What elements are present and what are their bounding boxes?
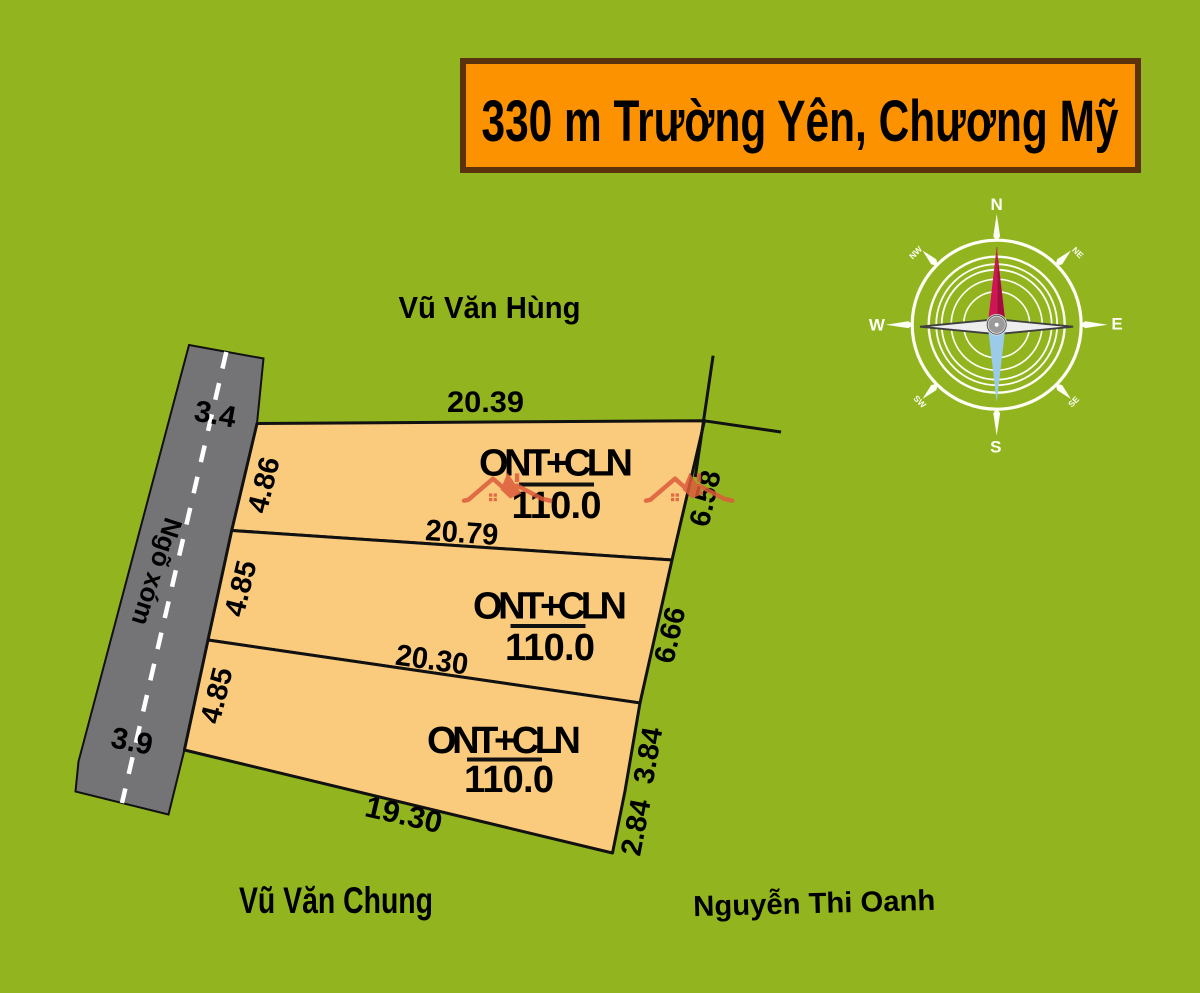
svg-text:110.0: 110.0 <box>464 759 554 801</box>
svg-text:W: W <box>869 316 886 335</box>
svg-text:ONT+CLN: ONT+CLN <box>479 443 633 485</box>
svg-text:330 m Trường Yên, Chương Mỹ: 330 m Trường Yên, Chương Mỹ <box>482 89 1119 154</box>
svg-text:110.0: 110.0 <box>505 627 595 669</box>
svg-text:Vũ Văn Chung: Vũ Văn Chung <box>239 880 433 921</box>
svg-text:ONT+CLN: ONT+CLN <box>473 586 627 628</box>
svg-text:20.79: 20.79 <box>424 514 499 552</box>
svg-text:E: E <box>1111 315 1122 334</box>
svg-text:S: S <box>990 437 1001 456</box>
svg-text:ONT+CLN: ONT+CLN <box>427 720 581 762</box>
svg-text:N: N <box>991 195 1003 214</box>
svg-text:Vũ Văn Hùng: Vũ Văn Hùng <box>399 290 581 325</box>
svg-text:20.39: 20.39 <box>447 386 524 419</box>
